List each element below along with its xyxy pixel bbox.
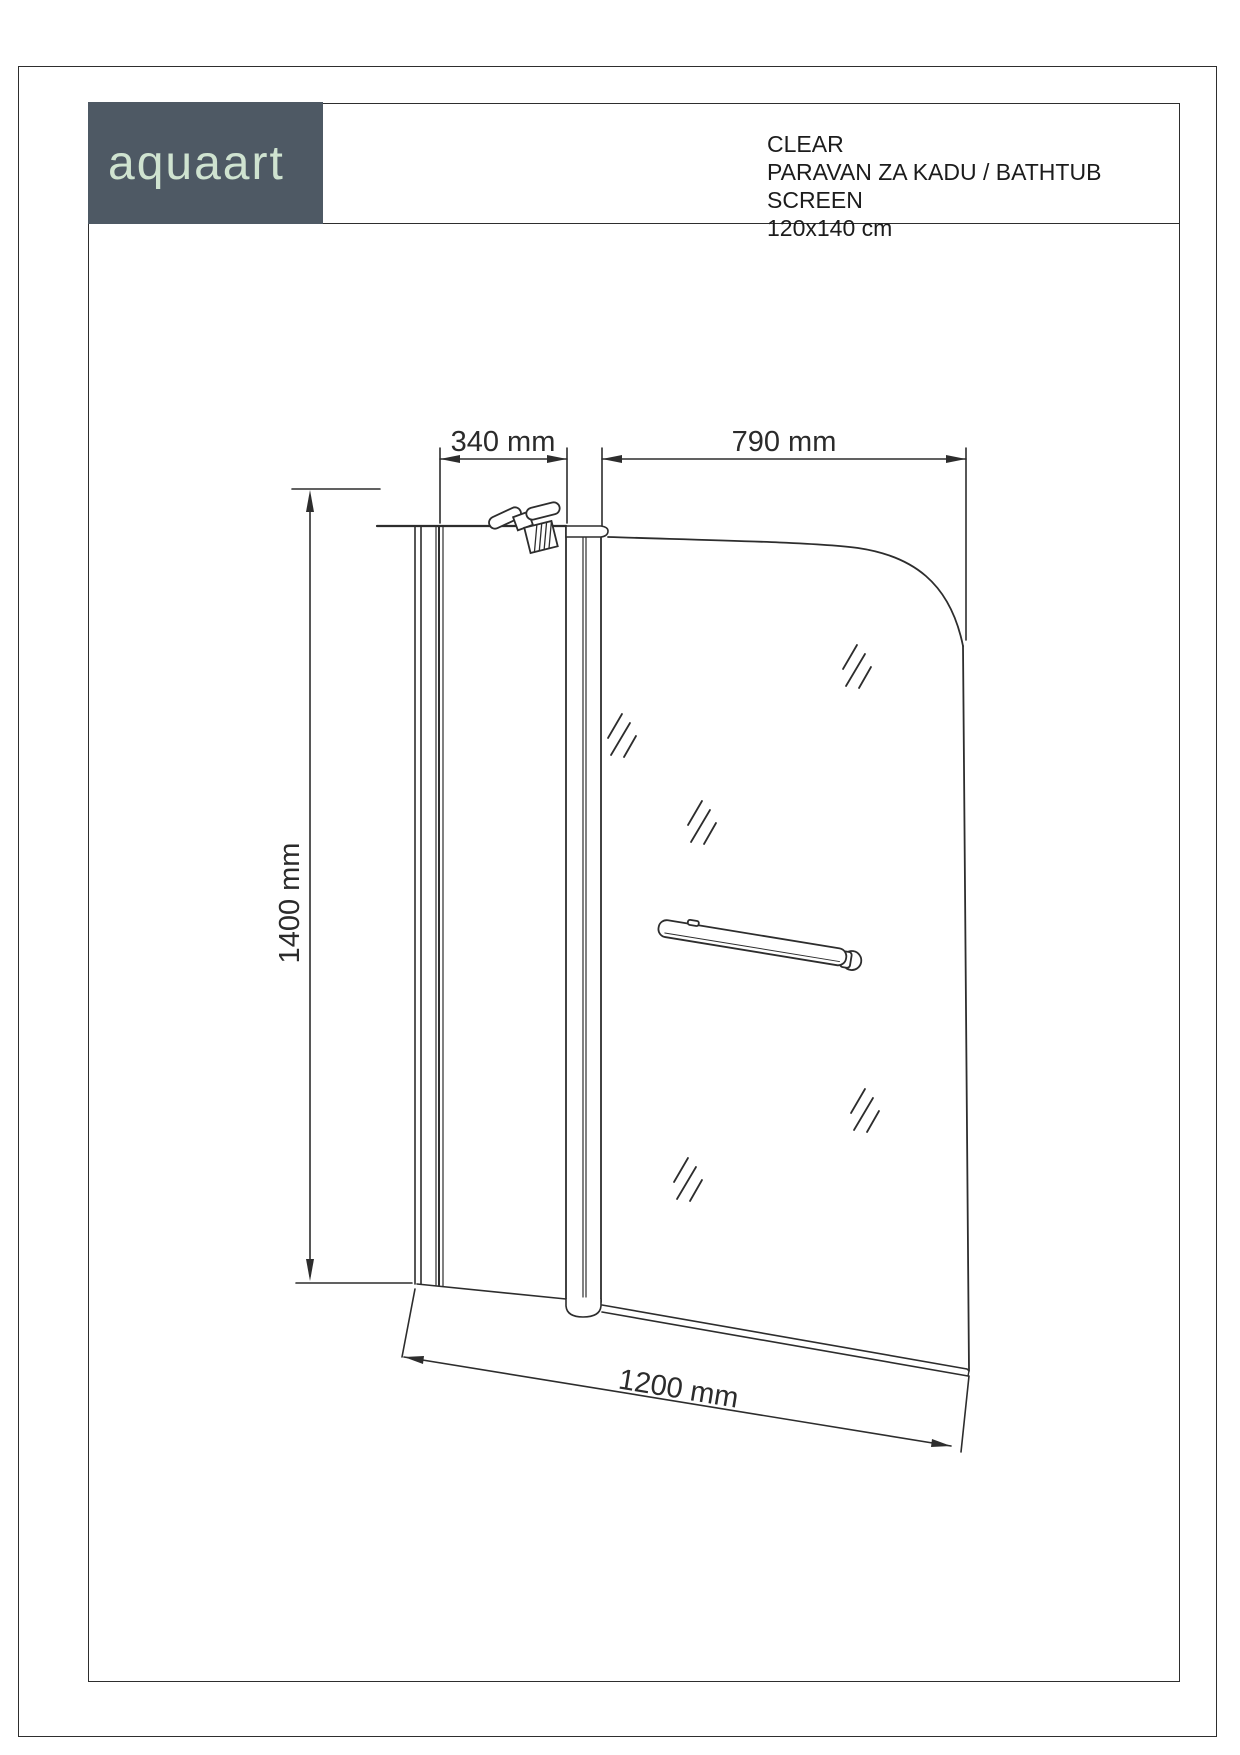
dim-height: 1400 mm [274, 489, 412, 1283]
glass-reflection-mark [843, 645, 871, 688]
hinge-assembly [487, 501, 561, 553]
dim-door-width-label: 790 mm [732, 426, 837, 458]
spec-sheet-page: aquaart CLEAR PARAVAN ZA KADU / BATHTUB … [0, 0, 1240, 1755]
dim-total-width-label: 1200 mm [616, 1364, 740, 1415]
hinge-hatched-block [524, 521, 557, 553]
glass-reflection-mark [608, 714, 636, 757]
glass-reflection-mark [674, 1158, 702, 1201]
pivot-top-bracket [566, 526, 608, 537]
dim-door-width: 790 mm [602, 426, 966, 640]
dim-total-width: 1200 mm [402, 1289, 969, 1452]
towel-bar-handle [657, 915, 864, 971]
wall-profile [377, 526, 566, 1299]
dim-fixed-panel-width-label: 340 mm [451, 426, 556, 458]
dim-height-label: 1400 mm [274, 843, 306, 964]
glass-reflection-mark [851, 1089, 879, 1132]
glass-reflection-mark [688, 801, 716, 844]
pivot-column [566, 526, 608, 1317]
technical-drawing: 1400 mm 340 mm 790 mm [0, 0, 1240, 1755]
